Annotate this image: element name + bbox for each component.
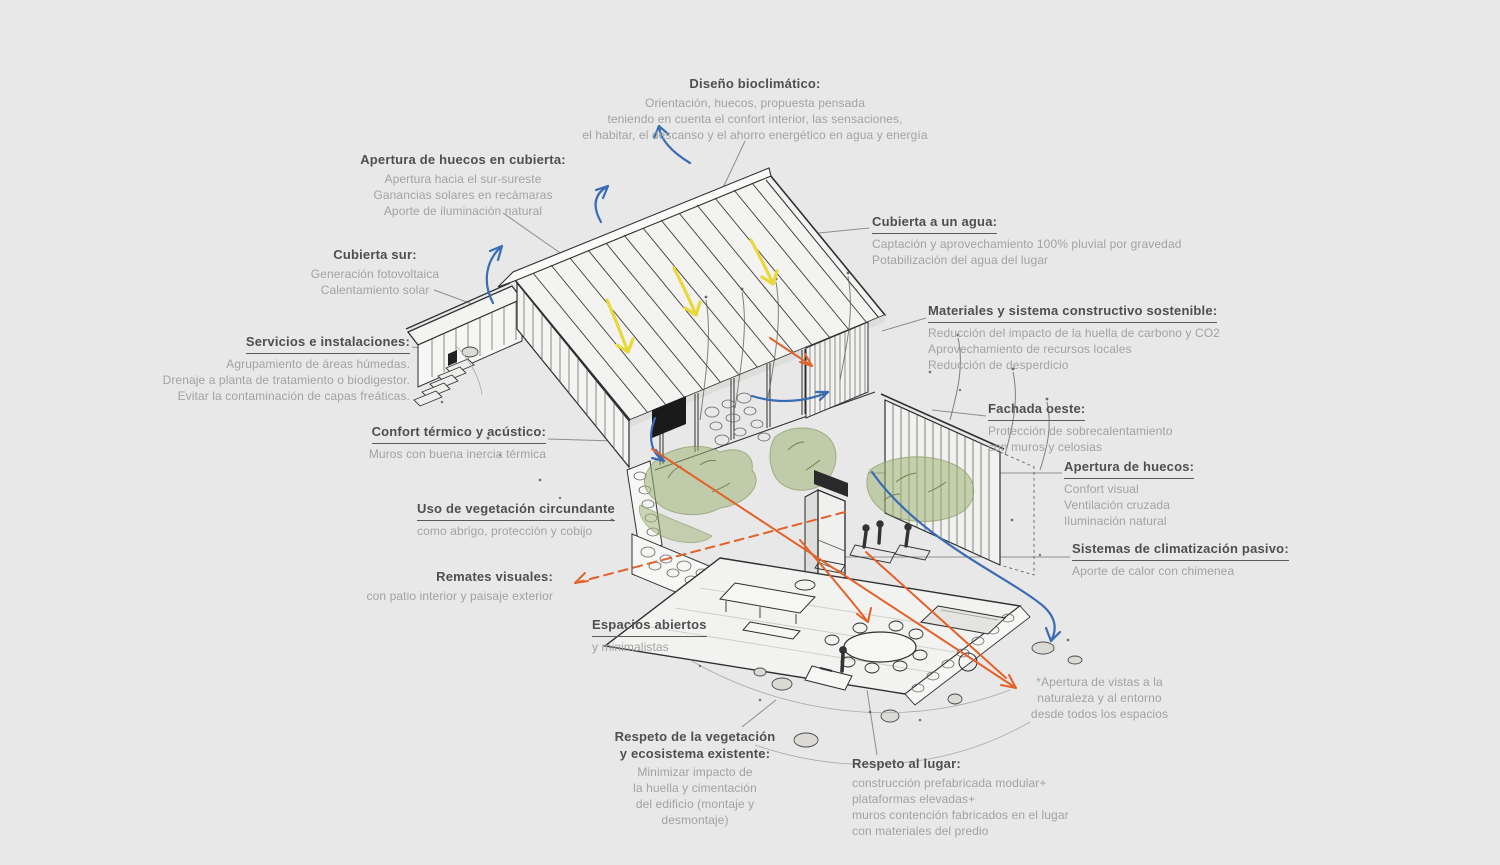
annotation-title: Remates visuales: <box>345 569 553 586</box>
annotation-body: Apertura hacia el sur-sureste Ganancias … <box>323 171 603 219</box>
annotation-body: *Apertura de vistas a la naturaleza y al… <box>1017 674 1182 722</box>
annotation-body: Muros con buena inercia térmica <box>300 446 546 462</box>
bioclimatic-design-diagram: Diseño bioclimático: Orientación, huecos… <box>0 0 1500 865</box>
annotation-title: Diseño bioclimático: <box>545 76 965 93</box>
annotation-climatizacion-pasiva: Sistemas de climatización pasivo: Aporte… <box>1072 540 1289 579</box>
annotation-body: construcción prefabricada modular+ plata… <box>852 775 1069 839</box>
annotation-body: Minimizar impacto de la huella y cimenta… <box>600 764 790 828</box>
annotation-remates-visuales: Remates visuales: con patio interior y p… <box>345 569 553 604</box>
annotation-title: Servicios e instalaciones: <box>246 334 410 354</box>
ground-contours <box>455 345 1030 764</box>
annotation-respeto-vegetacion: Respeto de la vegetación y ecosistema ex… <box>600 729 790 829</box>
annotation-title: Apertura de huecos en cubierta: <box>323 152 603 169</box>
annotation-title: Cubierta a un agua: <box>872 214 997 234</box>
annotation-materiales-sostenible: Materiales y sistema constructivo sosten… <box>928 302 1220 373</box>
annotation-body: como abrigo, protección y cobijo <box>417 523 615 539</box>
annotation-servicios-instalaciones: Servicios e instalaciones: Agrupamiento … <box>115 333 410 404</box>
annotation-fachada-oeste: Fachada oeste: Protección de sobrecalent… <box>988 400 1173 455</box>
annotation-title: Materiales y sistema constructivo sosten… <box>928 303 1217 323</box>
annotation-cubierta-a-un-agua: Cubierta a un agua: Captación y aprovech… <box>872 213 1182 268</box>
annotation-body: Reducción del impacto de la huella de ca… <box>928 325 1220 373</box>
annotation-body: Aporte de calor con chimenea <box>1072 563 1289 579</box>
annotation-apertura-vistas: *Apertura de vistas a la naturaleza y al… <box>1017 672 1182 722</box>
annotation-uso-vegetacion: Uso de vegetación circundante como abrig… <box>417 500 615 539</box>
leader-fachada-oeste <box>932 410 986 416</box>
annotation-apertura-huecos: Apertura de huecos: Confort visual Venti… <box>1064 458 1194 529</box>
annotation-diseno-bioclimatico: Diseño bioclimático: Orientación, huecos… <box>545 76 965 143</box>
annotation-body: con patio interior y paisaje exterior <box>345 588 553 604</box>
annotation-title: Uso de vegetación circundante <box>417 501 615 521</box>
leader-respeto-lugar <box>867 690 877 755</box>
annotation-body: y minimalistas <box>592 639 707 655</box>
leader-apertura-cubierta <box>503 213 566 257</box>
annotation-body: Captación y aprovechamiento 100% pluvial… <box>872 236 1182 268</box>
annotation-body: Orientación, huecos, propuesta pensada t… <box>545 95 965 143</box>
annotation-title: Cubierta sur: <box>270 247 480 264</box>
stone-wall-upper <box>705 393 770 445</box>
annotation-title: Respeto de la vegetación y ecosistema ex… <box>600 729 790 762</box>
annotation-body: Generación fotovoltaica Calentamiento so… <box>270 266 480 298</box>
annotation-title: Respeto al lugar: <box>852 756 1069 773</box>
annotation-title: Espacios abiertos <box>592 617 707 637</box>
annotation-body: Confort visual Ventilación cruzada Ilumi… <box>1064 481 1194 529</box>
annotation-title: Sistemas de climatización pasivo: <box>1072 541 1289 561</box>
annotation-title: Apertura de huecos: <box>1064 459 1194 479</box>
vegetation-patch-right <box>867 457 974 522</box>
annotation-body: Protección de sobrecalentamiento con mur… <box>988 423 1173 455</box>
leader-confort <box>548 439 615 441</box>
leader-respeto-vegetacion <box>742 700 776 727</box>
annotation-title: Confort térmico y acústico: <box>372 424 546 444</box>
leader-materiales <box>882 318 926 331</box>
annotation-cubierta-sur: Cubierta sur: Generación fotovoltaica Ca… <box>270 247 480 298</box>
annotation-apertura-huecos-cubierta: Apertura de huecos en cubierta: Apertura… <box>323 152 603 219</box>
annotation-title: Fachada oeste: <box>988 401 1085 421</box>
annotation-espacios-abiertos: Espacios abiertos y minimalistas <box>592 616 707 655</box>
annotation-body: Agrupamiento de áreas húmedas. Drenaje a… <box>115 356 410 404</box>
annotation-respeto-al-lugar: Respeto al lugar: construcción prefabric… <box>852 756 1069 839</box>
annotation-confort-termico: Confort térmico y acústico: Muros con bu… <box>300 423 546 462</box>
